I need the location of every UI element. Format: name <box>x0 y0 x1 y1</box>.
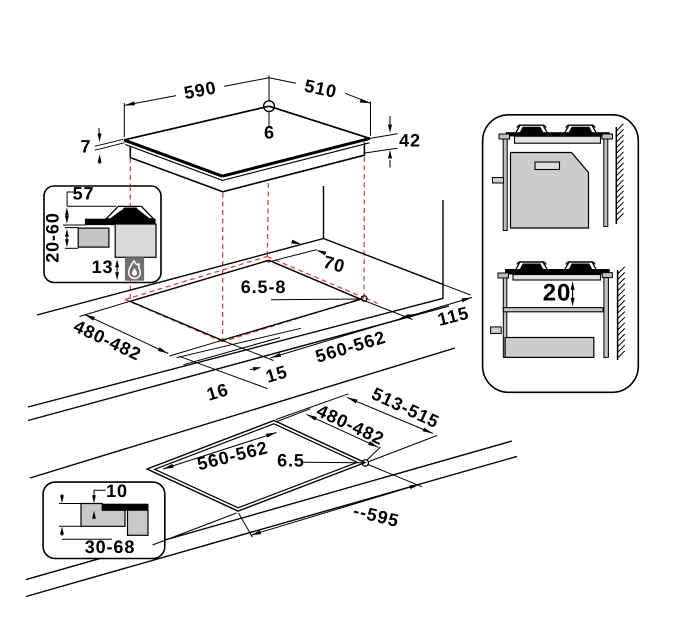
svg-text:57: 57 <box>73 183 95 203</box>
svg-text:6.5: 6.5 <box>277 451 305 471</box>
svg-text:30-68: 30-68 <box>85 537 136 557</box>
svg-text:6: 6 <box>264 122 275 142</box>
svg-text:20-60: 20-60 <box>42 212 62 263</box>
svg-text:13: 13 <box>92 257 114 277</box>
svg-text:6.5-8: 6.5-8 <box>241 277 287 297</box>
svg-text:20: 20 <box>543 279 572 306</box>
svg-text:42: 42 <box>399 130 421 150</box>
svg-text:10: 10 <box>106 481 128 501</box>
svg-text:7: 7 <box>81 136 92 156</box>
